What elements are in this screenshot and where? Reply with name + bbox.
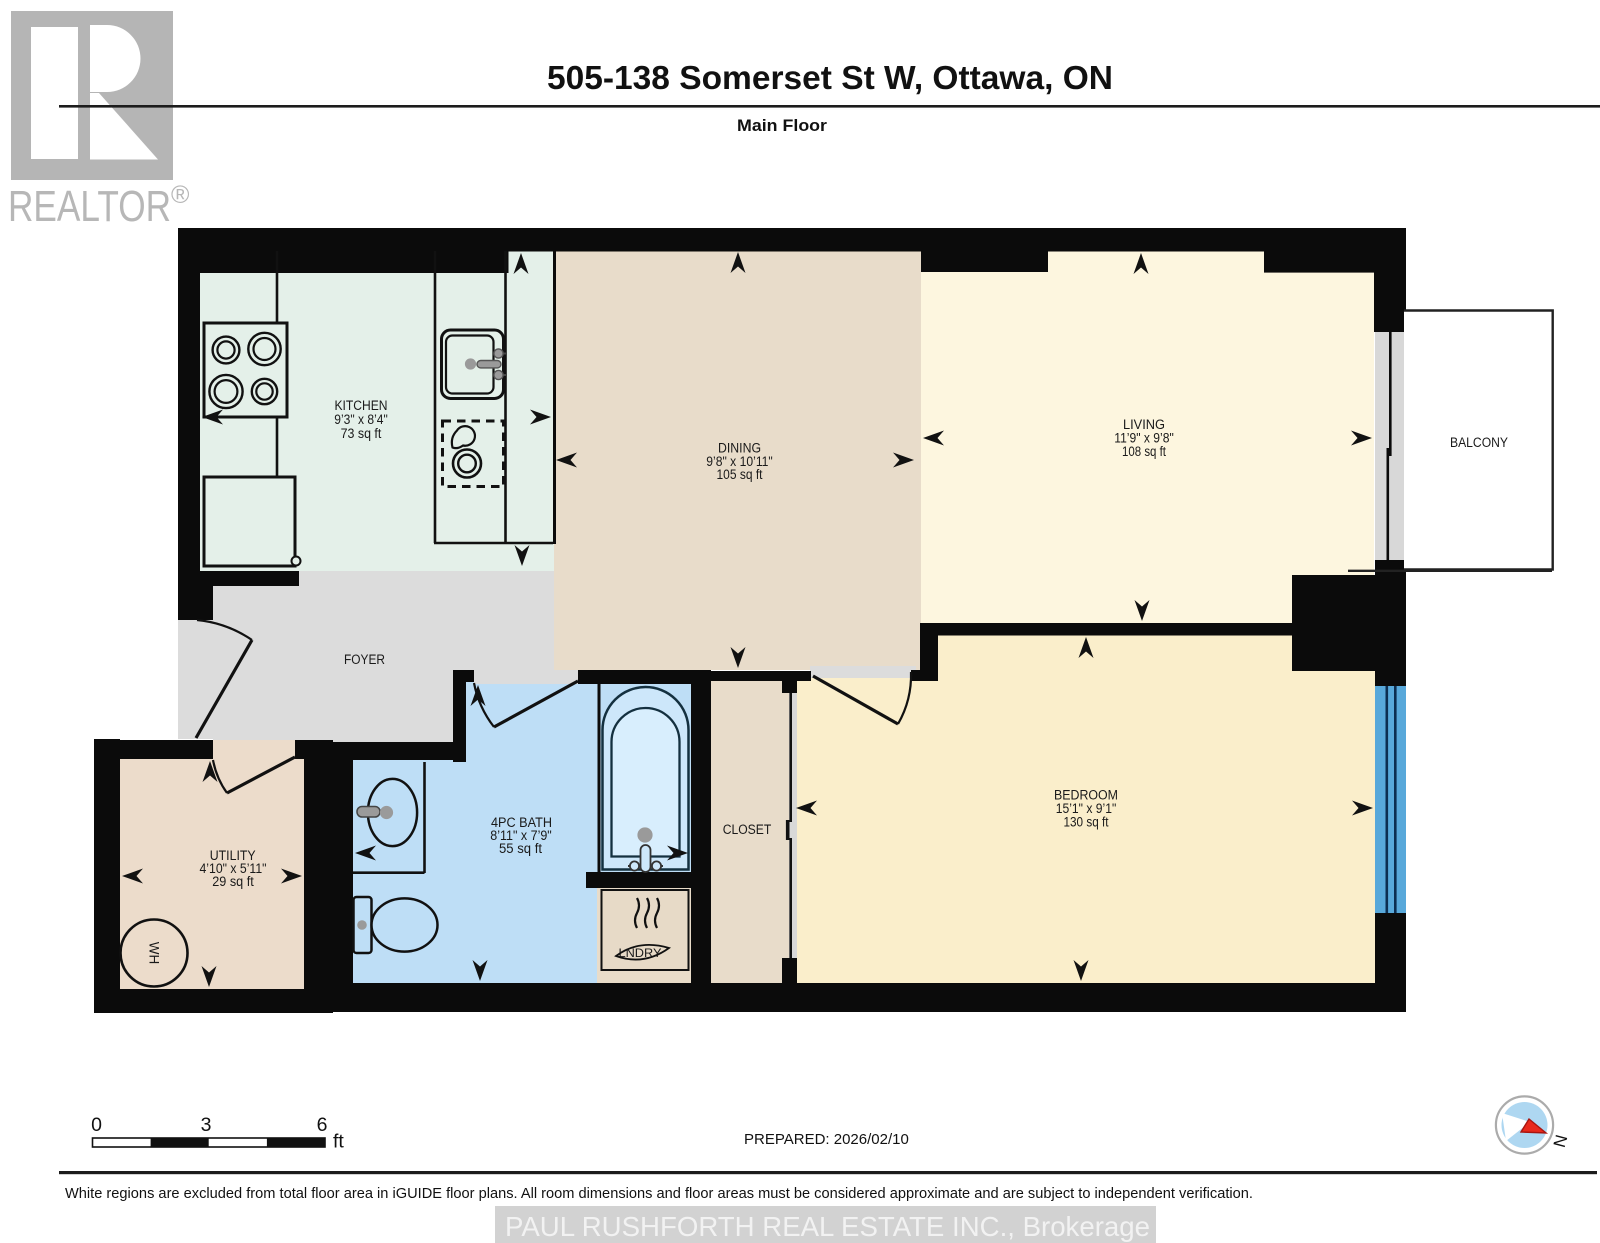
svg-text:FOYER: FOYER xyxy=(344,652,385,668)
svg-text:55 sq ft: 55 sq ft xyxy=(499,841,542,857)
svg-text:BALCONY: BALCONY xyxy=(1450,435,1508,451)
svg-text:6: 6 xyxy=(317,1114,328,1136)
svg-text:White regions are excluded fro: White regions are excluded from total fl… xyxy=(65,1186,1253,1202)
svg-text:ft: ft xyxy=(333,1131,344,1153)
svg-text:73 sq ft: 73 sq ft xyxy=(341,426,382,442)
svg-text:130 sq ft: 130 sq ft xyxy=(1064,815,1109,831)
svg-text:WH: WH xyxy=(147,942,162,965)
svg-text:®: ® xyxy=(171,181,190,209)
svg-text:PREPARED: 2026/02/10: PREPARED: 2026/02/10 xyxy=(744,1131,909,1148)
svg-text:108 sq ft: 108 sq ft xyxy=(1122,444,1166,460)
svg-text:CLOSET: CLOSET xyxy=(723,822,772,838)
svg-text:105 sq ft: 105 sq ft xyxy=(717,467,763,483)
svg-text:REALTOR: REALTOR xyxy=(8,182,171,231)
svg-text:29 sq ft: 29 sq ft xyxy=(212,874,254,890)
svg-text:Main Floor: Main Floor xyxy=(737,117,828,135)
svg-text:PAUL RUSHFORTH REAL ESTATE INC: PAUL RUSHFORTH REAL ESTATE INC., Brokera… xyxy=(505,1211,1150,1242)
svg-text:505-138 Somerset St W, Ottawa,: 505-138 Somerset St W, Ottawa, ON xyxy=(547,60,1113,97)
svg-text:3: 3 xyxy=(201,1114,212,1136)
svg-text:0: 0 xyxy=(91,1114,102,1136)
